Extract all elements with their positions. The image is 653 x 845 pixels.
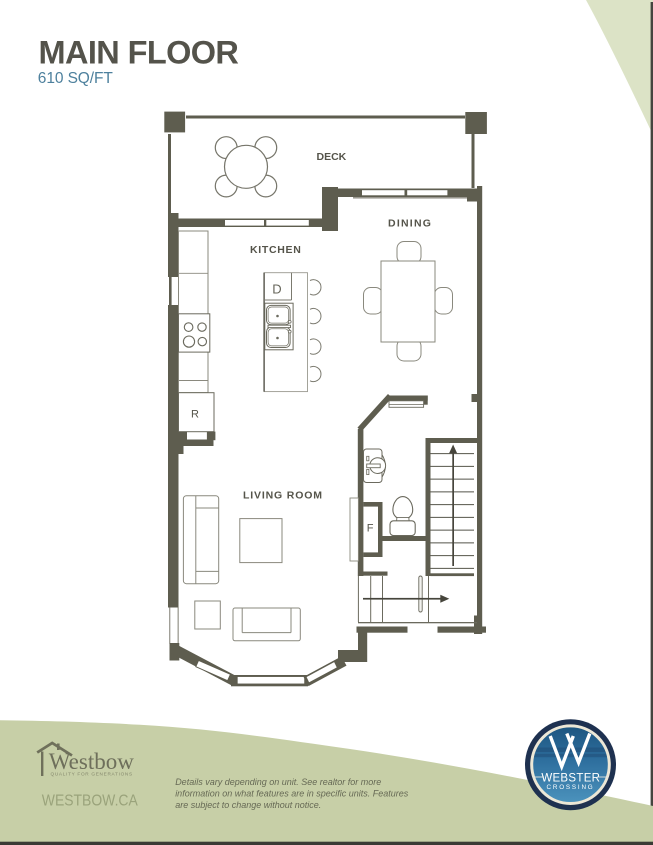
svg-text:information on what features a: information on what features are in spec…: [175, 789, 409, 799]
svg-text:WESTBOW.CA: WESTBOW.CA: [42, 793, 138, 810]
svg-text:LIVING ROOM: LIVING ROOM: [243, 490, 323, 502]
svg-text:are subject to change without: are subject to change without notice.: [175, 800, 321, 810]
svg-text:WEBSTER: WEBSTER: [541, 772, 600, 784]
svg-text:Westbow: Westbow: [49, 749, 134, 774]
svg-text:F: F: [367, 522, 374, 534]
svg-text:MAIN FLOOR: MAIN FLOOR: [39, 35, 239, 71]
svg-text:DINING: DINING: [388, 218, 432, 230]
svg-text:CROSSING: CROSSING: [547, 784, 595, 791]
svg-text:Details vary depending on unit: Details vary depending on unit. See real…: [175, 777, 381, 787]
svg-text:QUALITY FOR GENERATIONS: QUALITY FOR GENERATIONS: [51, 771, 133, 776]
svg-text:KITCHEN: KITCHEN: [250, 244, 302, 256]
svg-text:DECK: DECK: [317, 151, 347, 163]
svg-text:610 SQ/FT: 610 SQ/FT: [38, 70, 114, 87]
svg-text:D: D: [272, 282, 281, 297]
svg-text:R: R: [191, 409, 199, 421]
